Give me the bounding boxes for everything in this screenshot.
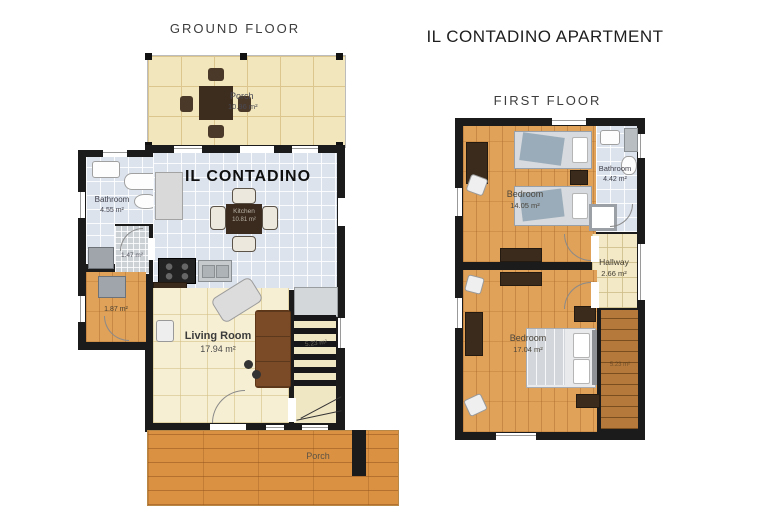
floor-plan-canvas: GROUND FLOOR Porch 10.96 m² Bathroom 4.5… — [0, 0, 768, 512]
window — [103, 150, 127, 157]
window — [338, 318, 345, 348]
apartment-brand-text: IL CONTADINO — [178, 168, 318, 186]
window — [552, 118, 586, 125]
window — [174, 146, 202, 153]
sink-basin — [216, 265, 229, 278]
blanket — [519, 132, 564, 166]
floor-lamp — [252, 370, 261, 379]
radiator — [624, 128, 638, 152]
bathroom-sink — [92, 161, 120, 178]
stairs-winder — [294, 393, 336, 423]
ff-bathroom-label: Bathroom — [592, 165, 638, 173]
single-bed — [514, 131, 592, 169]
stove — [158, 258, 196, 284]
ground-wc-area: 1.47 m² — [116, 252, 148, 259]
headboard — [592, 330, 597, 385]
porch-top-area: 10.96 m² — [228, 103, 258, 111]
nightstand — [576, 394, 600, 408]
living-room-label: Living Room — [168, 330, 268, 342]
entry-cabinet — [98, 276, 126, 298]
pillow — [572, 193, 588, 219]
ground-floor-heading: GROUND FLOOR — [160, 22, 310, 36]
ground-bathroom-area: 4.55 m² — [92, 207, 132, 215]
dresser — [500, 248, 542, 262]
side-chair — [156, 320, 174, 342]
ff-stairs-area: 5.23 m² — [602, 362, 638, 369]
window — [78, 192, 85, 218]
side-door-opening — [338, 198, 345, 226]
porch-bottom-label: Porch — [296, 452, 340, 462]
washing-machine — [88, 247, 114, 269]
floor-lamp — [244, 360, 253, 369]
kitchen-sink — [198, 260, 232, 282]
apartment-title: IL CONTADINO APARTMENT — [410, 28, 680, 47]
kitchen-label: Kitchen — [233, 208, 255, 215]
desk — [465, 312, 483, 356]
door-opening — [591, 236, 599, 262]
dining-table: Kitchen 10.81 m² — [226, 204, 262, 234]
ground-bathroom-label: Bathroom — [86, 196, 138, 205]
dining-chair — [232, 236, 256, 252]
nightstand — [570, 170, 588, 185]
ground-entry-area: 1.87 m² — [98, 306, 134, 314]
dining-chair — [262, 206, 278, 230]
hallway-label: Hallway — [593, 258, 635, 267]
pillow — [573, 333, 590, 358]
window — [496, 433, 536, 440]
dining-chair — [210, 206, 226, 230]
ff-bedroom-top-area: 14.05 m² — [500, 202, 550, 210]
pillow — [573, 359, 590, 384]
ff-stairs — [601, 310, 638, 429]
ff-bedroom-bottom-area: 17.04 m² — [503, 346, 553, 354]
outdoor-chair — [180, 96, 193, 112]
kitchen-area: 10.81 m² — [232, 217, 256, 223]
porch-door-opening — [240, 146, 274, 153]
window — [292, 146, 318, 153]
ff-bathroom-area: 4.42 m² — [596, 176, 634, 184]
balcony-door — [638, 244, 645, 300]
ground-porch-top: Porch 10.96 m² — [147, 55, 346, 148]
outdoor-chair — [208, 125, 224, 138]
porch-top-label: Porch — [230, 92, 254, 102]
stairs-landing — [294, 287, 338, 317]
ff-bedroom-top-label: Bedroom — [495, 190, 555, 200]
ff-bedroom-bottom-label: Bedroom — [496, 334, 560, 344]
porch-post — [145, 53, 152, 60]
first-floor-heading: FIRST FLOOR — [480, 94, 615, 108]
window — [78, 296, 85, 322]
outdoor-chair — [208, 68, 224, 81]
ff-sink — [600, 130, 620, 145]
window — [455, 188, 462, 216]
ground-stairs — [294, 315, 336, 393]
hallway-area: 2.66 m² — [597, 270, 631, 278]
window — [455, 298, 462, 328]
dining-chair — [232, 188, 256, 204]
sink-basin — [202, 265, 215, 278]
stairs-opening — [288, 398, 296, 422]
door-opening — [591, 282, 599, 308]
porch-post — [336, 53, 343, 60]
porch-wall-stub — [352, 430, 366, 476]
pillow — [572, 137, 588, 163]
interior-opening — [148, 238, 155, 260]
kitchen-cabinet — [155, 172, 183, 220]
dresser — [500, 272, 542, 286]
living-room-area: 17.94 m² — [185, 345, 251, 355]
window — [638, 134, 645, 158]
porch-post — [240, 53, 247, 60]
